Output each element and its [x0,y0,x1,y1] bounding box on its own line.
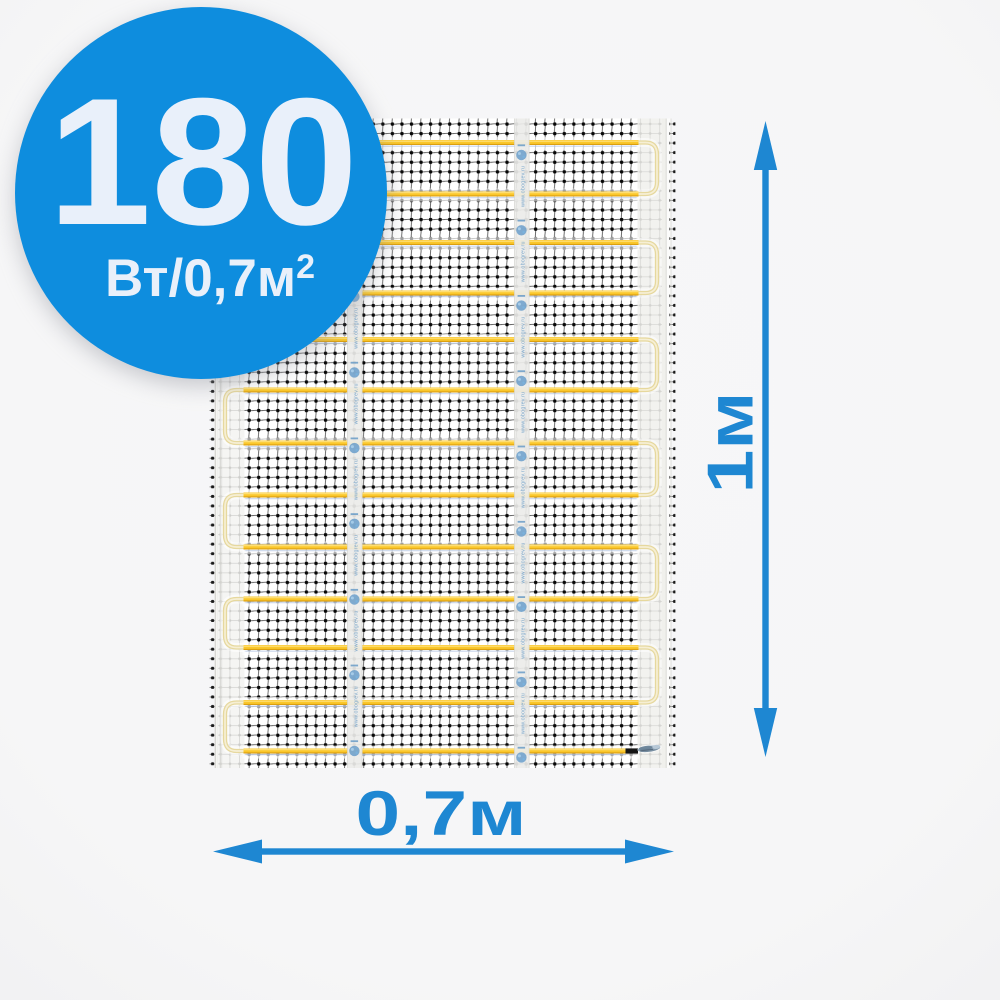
svg-text:www.obogrev.ru: www.obogrev.ru [520,467,526,509]
svg-text:www.obogrev.ru: www.obogrev.ru [520,392,526,434]
svg-text:www.obogrev.ru: www.obogrev.ru [353,535,359,577]
svg-text:www.obogrev.ru: www.obogrev.ru [520,693,526,735]
svg-text:www.obogrev.ru: www.obogrev.ru [520,166,526,208]
svg-text:www.obogrev.ru: www.obogrev.ru [353,686,359,728]
svg-text:www.obogrev.ru: www.obogrev.ru [353,308,359,350]
svg-text:www.obogrev.ru: www.obogrev.ru [520,618,526,660]
svg-text:0,7м: 0,7м [356,779,527,849]
svg-text:Вт/0,7м2: Вт/0,7м2 [105,248,315,308]
svg-text:www.obogrev.ru: www.obogrev.ru [353,459,359,501]
svg-text:www.obogrev.ru: www.obogrev.ru [353,610,359,652]
svg-text:www.obogrev.ru: www.obogrev.ru [520,542,526,584]
svg-text:180: 180 [48,61,358,263]
svg-text:1м: 1м [694,392,767,494]
svg-text:www.obogrev.ru: www.obogrev.ru [353,383,359,425]
svg-text:www.obogrev.ru: www.obogrev.ru [520,241,526,283]
svg-text:www.obogrev.ru: www.obogrev.ru [520,317,526,359]
